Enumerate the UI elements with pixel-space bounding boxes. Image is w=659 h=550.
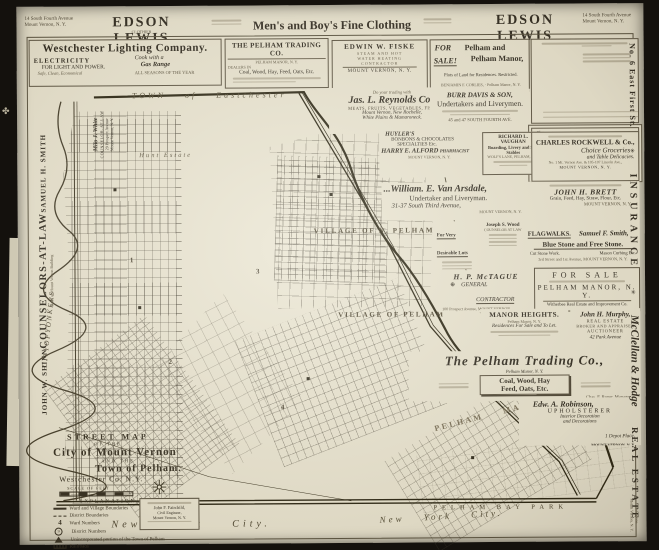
ad-robinson: Edw. A. Robinson, UPHOLSTERER Interior D… (519, 397, 641, 446)
ad-witherbee: FOR SALE PELHAM MANOR, N. Y. Witherbee R… (534, 267, 640, 312)
building-block (317, 175, 320, 178)
ad-title: EDWIN W. FISKE (335, 42, 425, 51)
ad-brett: JOHN H. BRETT Grain, Feed, Hay, Straw, F… (531, 181, 639, 222)
ward-numeral-icon: 4 (53, 520, 66, 527)
ad-milo-white: Milo J. White COUNSELOR-AT-LAW 29 Prospe… (93, 100, 114, 168)
ad-pelham-trading-top: THE PELHAM TRADING CO. PELHAM MANOR, N. … (225, 38, 329, 89)
building-block (113, 188, 116, 191)
ward-number: 3 (256, 267, 260, 275)
ad-van-arsdale: ...William. E. Van Arsdale, Undertaker a… (381, 182, 531, 221)
ad-mctague: H. P. McTAGUE ⊕ GENERAL CONTRACTOR 100 P… (440, 270, 532, 313)
ad-manor-heights: MANOR HEIGHTS. Pelham Manor, N. Y. Resid… (480, 309, 568, 354)
ad-title: Samuel F. Smith, (579, 229, 629, 237)
ad-title: Westchester Lighting Company. (32, 42, 219, 55)
ad-wood-counselor: Joseph S. Wood COUNSELOR AT LAW (482, 221, 524, 269)
building-block (471, 456, 474, 459)
building-block (330, 193, 333, 196)
map-title-block: STREET MAP OF THE City of Mount Vernon A… (53, 432, 209, 550)
asterisk-ornament-icon: ✳ (628, 148, 635, 153)
map-title-line: Town of Pelham. (95, 463, 208, 475)
ward-number: 4 (281, 403, 285, 411)
ad-wood-lots: For Very Desirable Lots JOSEPH S. WOOD (435, 221, 479, 269)
ad-rockwell: CHARLES ROCKWELL & Co., Choice Groceries… (531, 131, 639, 182)
ward-number: 1 (130, 256, 134, 264)
label-hunt-estate: Hunt Estate (139, 152, 192, 159)
triangle-icon (55, 536, 63, 542)
railroad-line-icon (54, 545, 67, 549)
cross-ornament-icon: ⊕ (450, 281, 455, 288)
scale-bar (59, 491, 133, 496)
ad-pelham-trading-main: The Pelham Trading Co., Pelham Manor, N.… (408, 350, 640, 401)
ad-compass-globe (531, 38, 640, 124)
building-block (307, 377, 310, 380)
scale-caption: SCALE OF FEET (67, 485, 208, 491)
ad-westchester-lighting: Westchester Lighting Company. ELECTRICIT… (29, 39, 222, 87)
trading-goods-box: Coal, Wood, Hay Feed, Oats, Etc. (480, 375, 570, 396)
ward-number: 2 (169, 358, 173, 366)
label-village-of-pelham: VILLAGE OF PELHAM (338, 310, 445, 319)
ad-title: CHARLES ROCKWELL & Co., (534, 138, 636, 147)
label-town-of-eastchester: TOWN of Eastchester (132, 90, 287, 100)
boundary-line-icon (53, 507, 66, 509)
ad-corlies: FOR SALE! Pelham and Pelham Manor, Plots… (430, 39, 530, 93)
map-sheet: 14 South Fourth Avenue Mount Vernon, N. … (16, 3, 646, 545)
building-block (138, 306, 141, 309)
ad-title: The Pelham Trading Co., (410, 352, 638, 369)
label-village-of-n-pelham: VILLAGE OF N. PELHAM (314, 226, 435, 235)
ad-title: H. P. McTAGUE (442, 272, 530, 282)
ad-title: MANOR HEIGHTS. (482, 311, 566, 320)
surveyor-box: John F. Fairchild, Civil Engineer, Mount… (139, 498, 199, 530)
dashed-line-icon (53, 515, 66, 516)
map-title-line: STREET MAP (53, 432, 163, 442)
ad-title: THE PELHAM TRADING CO. (228, 41, 326, 60)
ad-title: FOR SALE (537, 270, 637, 280)
district-circle-icon: 9 (55, 528, 63, 536)
asterisk-ornament-icon: ✳ (629, 289, 636, 294)
map-title-line: Westchester Co. N.Y. (59, 474, 208, 484)
photo-background: ✤ 14 South Fourth Avenue Mount Vernon, N… (0, 0, 659, 550)
fleuron-ornament-icon: ✤ (2, 106, 10, 117)
ad-fiske: EDWIN W. FISKE STEAM AND HOT WATER HEATI… (332, 39, 428, 90)
right-margin-phone: Telephone Mount Vernon, N. Y. (629, 492, 639, 538)
left-margin-law-firm: JOHN W. SHINN COUNSELORS-AT-LAW Bank of … (37, 157, 55, 415)
surveyor-city: Mount Vernon, N. Y. (141, 514, 197, 519)
legend-row: Railroads (54, 543, 209, 550)
ad-alford: HUYLER'S BONBONS & CHOCOLATES SPECIALTIE… (379, 129, 479, 178)
ad-smith-stone: FLAGWALKS. Samuel F. Smith, Blue Stone a… (526, 220, 640, 271)
map-title-line: City of Mount Vernon (53, 446, 208, 459)
